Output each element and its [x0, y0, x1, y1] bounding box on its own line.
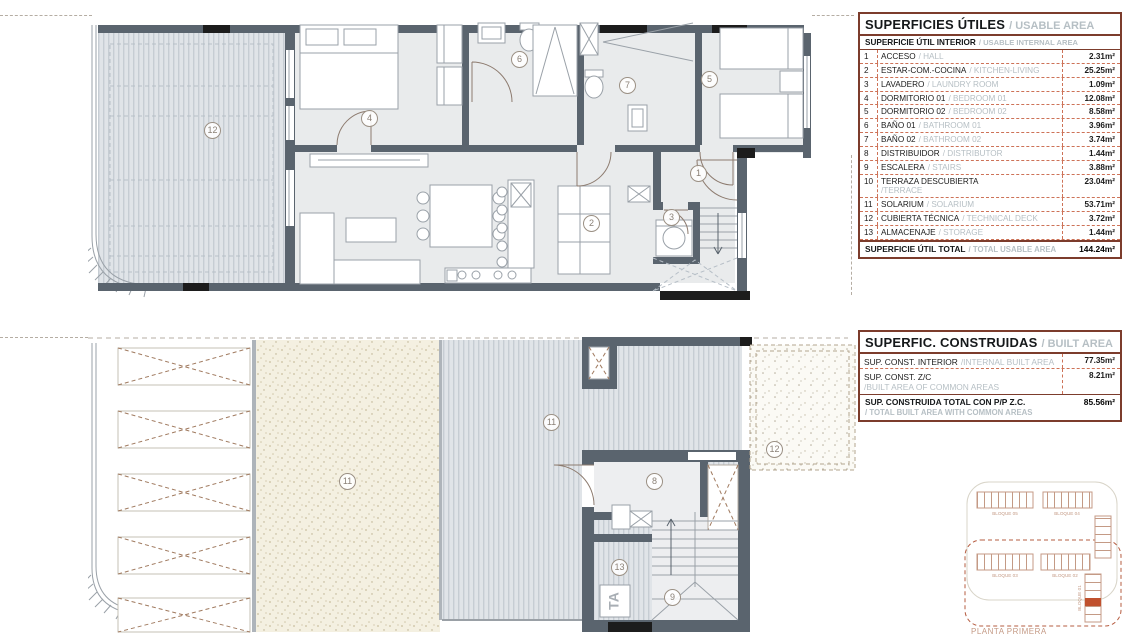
lift-label: TA — [606, 592, 622, 610]
table-row: 3LAVADERO/ LAUNDRY ROOM1.09m² — [860, 78, 1120, 92]
table-row: 5DORMITORIO 02/ BEDROOM 028.58m² — [860, 105, 1120, 119]
room-number-bath2: 7 — [619, 77, 636, 94]
floorplan-sheet: TA 12 4 6 7 5 1 3 2 11 11 8 13 9 12 SUPE… — [0, 0, 1130, 635]
table-row: SUP. CONST. INTERIOR/INTERNAL BUILT AREA… — [860, 354, 1120, 369]
table-row: 10TERRAZA DESCUBIERTA/TERRACE23.04m² — [860, 175, 1120, 199]
table-row: 12CUBIERTA TÉCNICA/ TECHNICAL DECK3.72m² — [860, 212, 1120, 226]
usable-total-label-en: / TOTAL USABLE AREA — [969, 245, 1057, 254]
block-5: BLOQUE 05 — [977, 492, 1033, 516]
boundary-dash-mid-left — [0, 337, 88, 338]
boundary-dash-top-left — [0, 15, 92, 16]
boundary-dash-top-right — [812, 15, 854, 16]
usable-title: SUPERFICIES ÚTILES — [865, 17, 1005, 32]
room-number-living: 2 — [583, 215, 600, 232]
table-row: 4DORMITORIO 01/ BEDROOM 0112.08m² — [860, 92, 1120, 106]
built-table-header: SUPERFIC. CONSTRUIDAS / BUILT AREA — [860, 332, 1120, 354]
room-number-distributor: 8 — [646, 473, 663, 490]
room-number-techdeck: 12 — [766, 441, 783, 458]
built-area-table: SUPERFIC. CONSTRUIDAS / BUILT AREA SUP. … — [858, 330, 1122, 422]
usable-subtitle: SUPERFICIE ÚTIL INTERIOR — [865, 38, 976, 47]
usable-table-subheader: SUPERFICIE ÚTIL INTERIOR / USABLE INTERN… — [860, 36, 1120, 50]
block-1: BLOQUE 01 — [1077, 574, 1101, 622]
table-row: SUP. CONST. Z/C/BUILT AREA OF COMMON ARE… — [860, 369, 1120, 395]
built-title: SUPERFIC. CONSTRUIDAS — [865, 335, 1038, 350]
upper-floor-plan — [88, 8, 812, 300]
usable-title-en: / USABLE AREA — [1009, 20, 1094, 32]
table-row: 2ESTAR-COM.-COCINA/ KITCHEN-LIVING25.25m… — [860, 64, 1120, 78]
room-number-bath1: 6 — [511, 51, 528, 68]
terrace-edge-wall — [439, 340, 442, 620]
block-4-label: BLOQUE 04 — [1054, 511, 1080, 516]
built-title-en: / BUILT AREA — [1042, 338, 1114, 350]
site-plan-legend: BLOQUE 05 BLOQUE 04 BLOQUE 03 BLOQUE 02 … — [963, 478, 1127, 628]
table-row: 1ACCESO/ HALL2.31m² — [860, 50, 1120, 64]
void-x — [708, 465, 738, 530]
highlighted-unit — [1085, 598, 1101, 606]
room-number-deck: 12 — [204, 122, 221, 139]
room-number-storage: 13 — [611, 559, 628, 576]
lower-floor-plan: TA — [88, 335, 858, 635]
ac-shaft — [589, 347, 609, 379]
built-total-value: 85.56m² — [1084, 397, 1115, 407]
room-number-solarium: 11 — [339, 473, 356, 490]
laundry-shaft — [580, 23, 598, 55]
room-number-stairs: 9 — [664, 589, 681, 606]
block-2: BLOQUE 02 — [1041, 554, 1090, 578]
solarium-edge-wall — [252, 340, 256, 632]
table-row: 11SOLARIUM/ SOLARIUM53.71m² — [860, 198, 1120, 212]
room-number-hall: 1 — [690, 165, 707, 182]
legend-caption: PLANTA PRIMERA — [971, 627, 1047, 635]
table-row: 13ALMACENAJE/ STORAGE1.44m² — [860, 226, 1120, 240]
deck-12 — [98, 33, 285, 283]
usable-subtitle-en: / USABLE INTERNAL AREA — [979, 38, 1078, 47]
pergola-beams — [118, 348, 250, 632]
usable-total-row: SUPERFICIE ÚTIL TOTAL / TOTAL USABLE ARE… — [860, 240, 1120, 257]
block-3-label: BLOQUE 03 — [992, 573, 1018, 578]
usable-table-header: SUPERFICIES ÚTILES / USABLE AREA — [860, 14, 1120, 36]
built-total-label-en: / TOTAL BUILT AREA WITH COMMON AREAS — [865, 408, 1115, 417]
table-row: 6BAÑO 01/ BATHROOM 013.96m² — [860, 119, 1120, 133]
lift: TA — [600, 585, 630, 617]
built-total-label: SUP. CONSTRUIDA TOTAL CON P/P Z.C. — [865, 397, 1025, 407]
block-3: BLOQUE 03 — [977, 554, 1033, 578]
boundary-dash-vertical — [851, 155, 852, 295]
table-row: 8DISTRIBUIDOR/ DISTRIBUTOR1.44m² — [860, 147, 1120, 161]
room-number-laundry: 3 — [663, 209, 680, 226]
room-number-terrace: 11 — [543, 414, 560, 431]
table-row: 9ESCALERA/ STAIRS3.88m² — [860, 161, 1120, 175]
block-5-label: BLOQUE 05 — [992, 511, 1018, 516]
table-row: 7BAÑO 02/ BATHROOM 023.74m² — [860, 133, 1120, 147]
room-number-bedroom2: 5 — [701, 71, 718, 88]
block-4: BLOQUE 04 — [1043, 492, 1111, 558]
block-1-label: BLOQUE 01 — [1077, 585, 1082, 611]
block-2-label: BLOQUE 02 — [1052, 573, 1078, 578]
room-number-bedroom1: 4 — [361, 110, 378, 127]
usable-total-value: 144.24m² — [1079, 244, 1115, 254]
usable-area-table: SUPERFICIES ÚTILES / USABLE AREA SUPERFI… — [858, 12, 1122, 259]
usable-total-label: SUPERFICIE ÚTIL TOTAL — [865, 244, 966, 254]
bed-double — [300, 25, 398, 109]
built-total-row: SUP. CONSTRUIDA TOTAL CON P/P Z.C. 85.56… — [860, 395, 1120, 420]
